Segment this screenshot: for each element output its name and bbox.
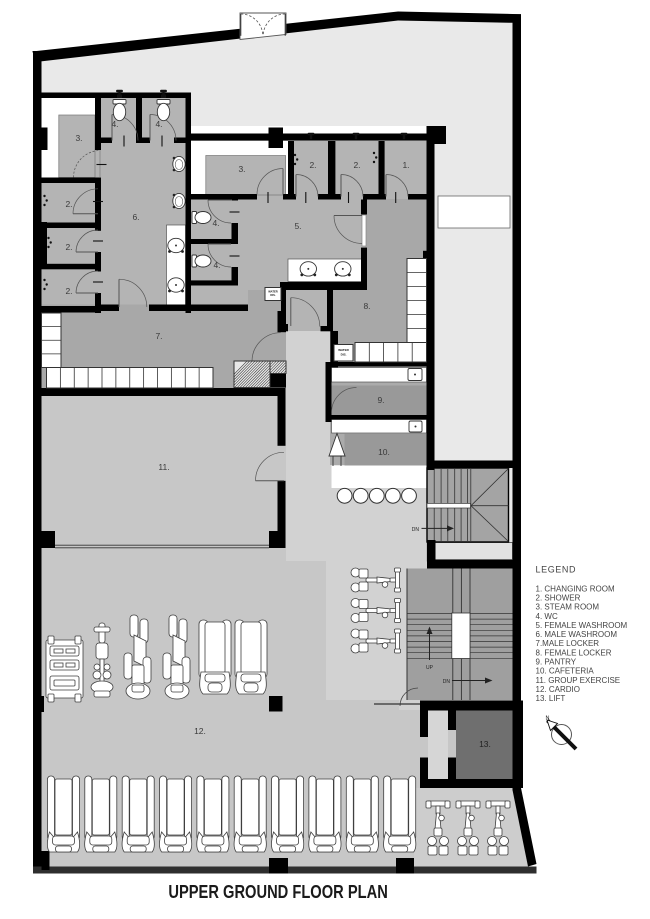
svg-text:UP: UP — [426, 665, 434, 671]
svg-text:6. MALE WASHROOM: 6. MALE WASHROOM — [536, 630, 618, 639]
svg-text:DN: DN — [412, 527, 420, 533]
svg-text:LEGEND: LEGEND — [536, 565, 577, 575]
svg-text:9. PANTRY: 9. PANTRY — [536, 658, 577, 667]
svg-text:13. LIFT: 13. LIFT — [536, 694, 566, 703]
svg-text:DIS.: DIS. — [270, 293, 275, 297]
svg-text:3. STEAM ROOM: 3. STEAM ROOM — [536, 603, 600, 612]
svg-text:7.MALE LOCKER: 7.MALE LOCKER — [536, 639, 600, 648]
svg-text:2. SHOWER: 2. SHOWER — [536, 593, 581, 602]
svg-text:10.: 10. — [378, 447, 390, 457]
svg-text:2.: 2. — [309, 160, 316, 170]
svg-text:3.: 3. — [75, 133, 82, 143]
svg-text:N: N — [546, 716, 550, 722]
svg-text:2.: 2. — [65, 199, 72, 209]
svg-text:8. FEMALE LOCKER: 8. FEMALE LOCKER — [536, 648, 612, 657]
svg-text:4.: 4. — [212, 218, 219, 228]
svg-text:UPPER GROUND FLOOR PLAN: UPPER GROUND FLOOR PLAN — [168, 881, 387, 902]
svg-text:8.: 8. — [363, 301, 370, 311]
svg-text:4. WC: 4. WC — [536, 612, 558, 621]
svg-text:3.: 3. — [238, 164, 245, 174]
svg-text:4.: 4. — [111, 119, 118, 129]
svg-text:WATER: WATER — [268, 290, 278, 294]
svg-text:12.: 12. — [194, 726, 206, 736]
svg-text:9.: 9. — [377, 395, 384, 405]
svg-text:4.: 4. — [155, 119, 162, 129]
svg-text:12. CARDIO: 12. CARDIO — [536, 685, 580, 694]
svg-text:2.: 2. — [65, 242, 72, 252]
svg-text:11. GROUP EXERCISE: 11. GROUP EXERCISE — [536, 676, 621, 685]
svg-text:4.: 4. — [213, 260, 220, 270]
svg-text:DIS.: DIS. — [341, 352, 347, 356]
svg-text:DN: DN — [443, 679, 451, 685]
svg-text:5. FEMALE WASHROOM: 5. FEMALE WASHROOM — [536, 621, 628, 630]
svg-text:2.: 2. — [353, 160, 360, 170]
svg-text:2.: 2. — [65, 286, 72, 296]
svg-text:10. CAFETERIA: 10. CAFETERIA — [536, 667, 595, 676]
svg-text:1.: 1. — [402, 160, 409, 170]
svg-text:6.: 6. — [132, 212, 139, 222]
svg-text:5.: 5. — [294, 221, 301, 231]
svg-text:7.: 7. — [155, 331, 162, 341]
svg-text:1. CHANGING ROOM: 1. CHANGING ROOM — [536, 584, 615, 593]
svg-text:13.: 13. — [479, 739, 491, 749]
svg-text:11.: 11. — [158, 462, 169, 472]
